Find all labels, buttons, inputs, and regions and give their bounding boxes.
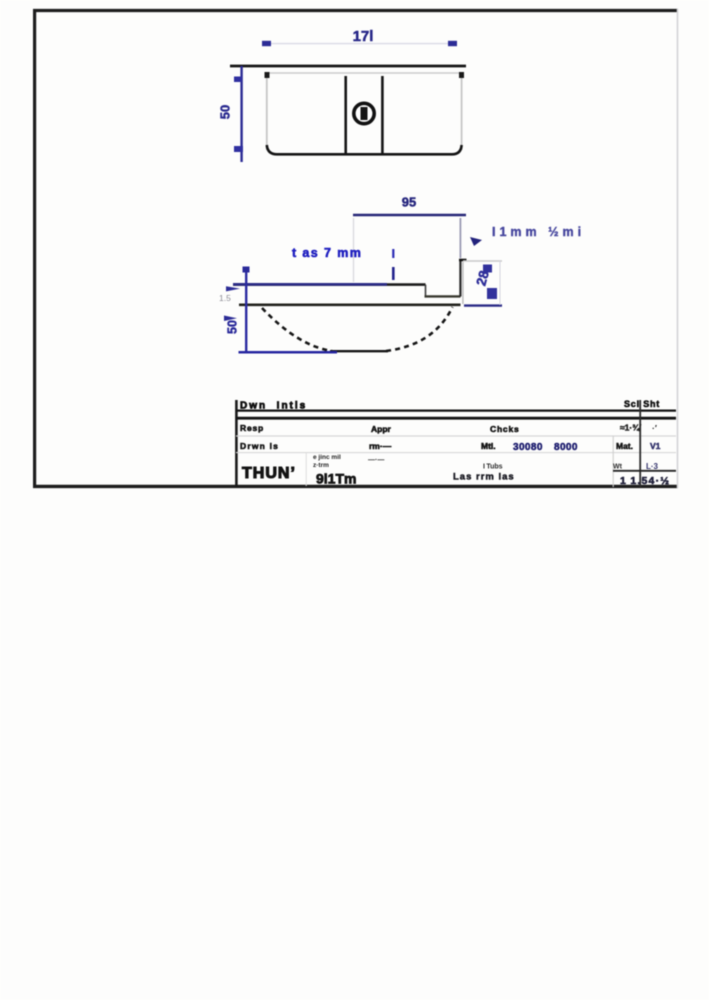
svg-text:z·trm: z·trm: [313, 462, 329, 469]
svg-text:I1mm ½mi: I1mm ½mi: [492, 225, 585, 239]
svg-text:I Tubs: I Tubs: [483, 464, 503, 471]
svg-text:17l: 17l: [353, 28, 374, 45]
svg-text:THUN’: THUN’: [242, 465, 296, 482]
svg-text:Chcks: Chcks: [490, 424, 520, 434]
svg-text:Drwn ls: Drwn ls: [240, 441, 279, 451]
svg-text:—·—: —·—: [368, 457, 384, 464]
svg-text:L·3: L·3: [646, 462, 659, 471]
svg-text:Wt: Wt: [613, 464, 623, 471]
svg-text:50: 50: [226, 320, 240, 334]
svg-text:Mtl.: Mtl.: [481, 441, 496, 451]
svg-text:Scl Sht: Scl Sht: [624, 399, 660, 409]
svg-text:·′: ·′: [652, 423, 657, 433]
svg-text:rm·—: rm·—: [369, 441, 392, 451]
svg-text:1 1.54·½: 1 1.54·½: [620, 475, 670, 487]
svg-text:Mat.: Mat.: [616, 441, 633, 451]
svg-text:1.5: 1.5: [219, 293, 231, 303]
svg-text:8000: 8000: [554, 442, 578, 453]
svg-text:Resp: Resp: [240, 423, 264, 433]
svg-text:9l1Tm: 9l1Tm: [316, 471, 356, 487]
svg-text:≈1·¾′: ≈1·¾′: [620, 423, 641, 433]
svg-text:V1: V1: [650, 441, 661, 451]
svg-text:e jinc mil: e jinc mil: [313, 454, 341, 461]
svg-text:50: 50: [218, 105, 233, 119]
svg-text:t as 7 mm: t as 7 mm: [292, 246, 362, 260]
svg-text:30080: 30080: [513, 442, 543, 453]
svg-text:95: 95: [402, 195, 416, 210]
svg-text:Appr: Appr: [371, 424, 392, 434]
svg-text:Las rrm ias: Las rrm ias: [453, 472, 515, 483]
